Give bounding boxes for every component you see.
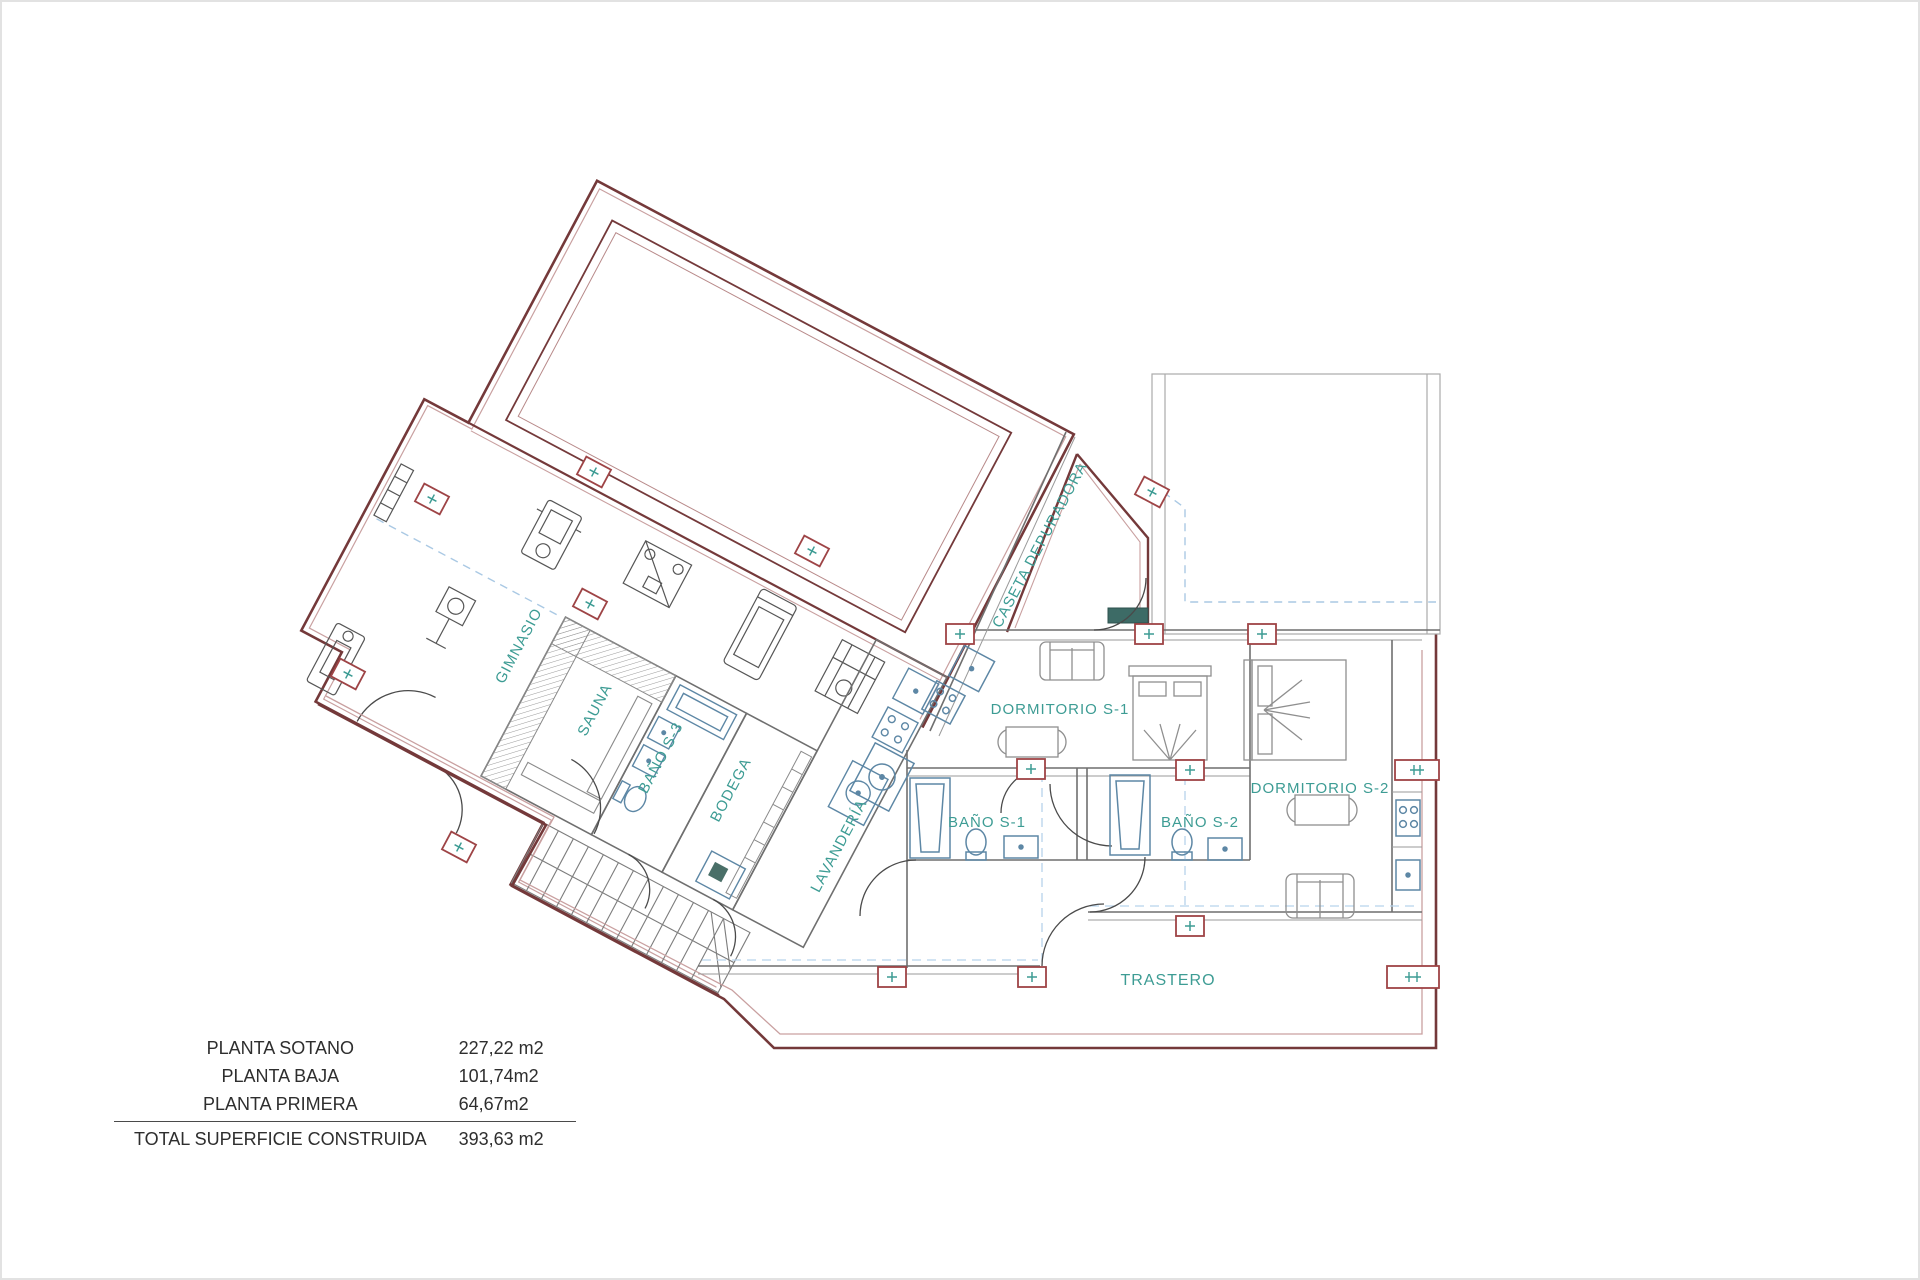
table-and-chairs [998, 727, 1066, 757]
outer-boundary [318, 634, 1436, 1048]
room-label-bano-s1: BAÑO S-1 [948, 814, 1026, 831]
total-value: 393,63 m2 [447, 1129, 576, 1150]
total-label: TOTAL SUPERFICIE CONSTRUIDA [114, 1129, 447, 1150]
room-label-dormitorio-s2: DORMITORIO S-2 [1251, 780, 1390, 797]
sofa [1040, 642, 1104, 680]
room-label-bano-s2: BAÑO S-2 [1161, 814, 1239, 831]
room-label-dormitorio-s1: DORMITORIO S-1 [991, 701, 1130, 718]
table-and-chairs [1287, 795, 1357, 825]
row-value: 64,67m2 [447, 1094, 576, 1115]
staircase [511, 823, 750, 993]
gym-machine-icon [623, 541, 691, 608]
table-total-row: TOTAL SUPERFICIE CONSTRUIDA 393,63 m2 [114, 1121, 576, 1153]
table-row: PLANTA PRIMERA 64,67m2 [114, 1090, 576, 1118]
bath-fixtures [850, 642, 1420, 890]
room-label-bodega: BODEGA [707, 755, 755, 825]
bed [1244, 660, 1346, 760]
row-value: 101,74m2 [447, 1066, 576, 1087]
table-row: PLANTA BAJA 101,74m2 [114, 1062, 576, 1090]
gym-rack-icon [815, 640, 885, 714]
room-labels: GIMNASIO SAUNA BAÑO S-3 BODEGA LAVANDERÍ… [492, 459, 1389, 989]
room-label-bano-s3: BAÑO S-3 [635, 719, 687, 796]
patio-outline [1152, 374, 1440, 634]
room-label-sauna: SAUNA [574, 681, 616, 739]
room-label-trastero: TRASTERO [1120, 972, 1215, 989]
row-label: PLANTA SOTANO [114, 1038, 447, 1059]
floor-plan-page: GIMNASIO SAUNA BAÑO S-3 BODEGA LAVANDERÍ… [0, 0, 1920, 1280]
area-summary-table: PLANTA SOTANO 227,22 m2 PLANTA BAJA 101,… [114, 1034, 576, 1153]
gym-machine-icon [515, 497, 587, 573]
table-row: PLANTA SOTANO 227,22 m2 [114, 1034, 576, 1062]
pool [506, 221, 1011, 633]
gym-dashed-divider [377, 519, 561, 617]
patio-dashed-line [1152, 484, 1436, 602]
row-label: PLANTA PRIMERA [114, 1094, 447, 1115]
laundry-appliances [922, 642, 995, 729]
gym-weight-rack-icon [374, 464, 414, 522]
row-value: 227,22 m2 [447, 1038, 576, 1059]
block-door-arcs [860, 578, 1146, 966]
gym-cable-icon [423, 587, 476, 651]
room-label-caseta-depuradora: CASETA DEPURADORA [989, 459, 1091, 630]
laundry-fixtures [828, 665, 938, 825]
gym-treadmill-icon [723, 588, 798, 681]
bed [1129, 666, 1211, 760]
rotated-wing [242, 157, 1077, 1020]
column-markers [331, 457, 1439, 988]
pump-equipment [1108, 608, 1148, 623]
row-label: PLANTA BAJA [114, 1066, 447, 1087]
wing-outer-walls [242, 157, 1077, 1020]
